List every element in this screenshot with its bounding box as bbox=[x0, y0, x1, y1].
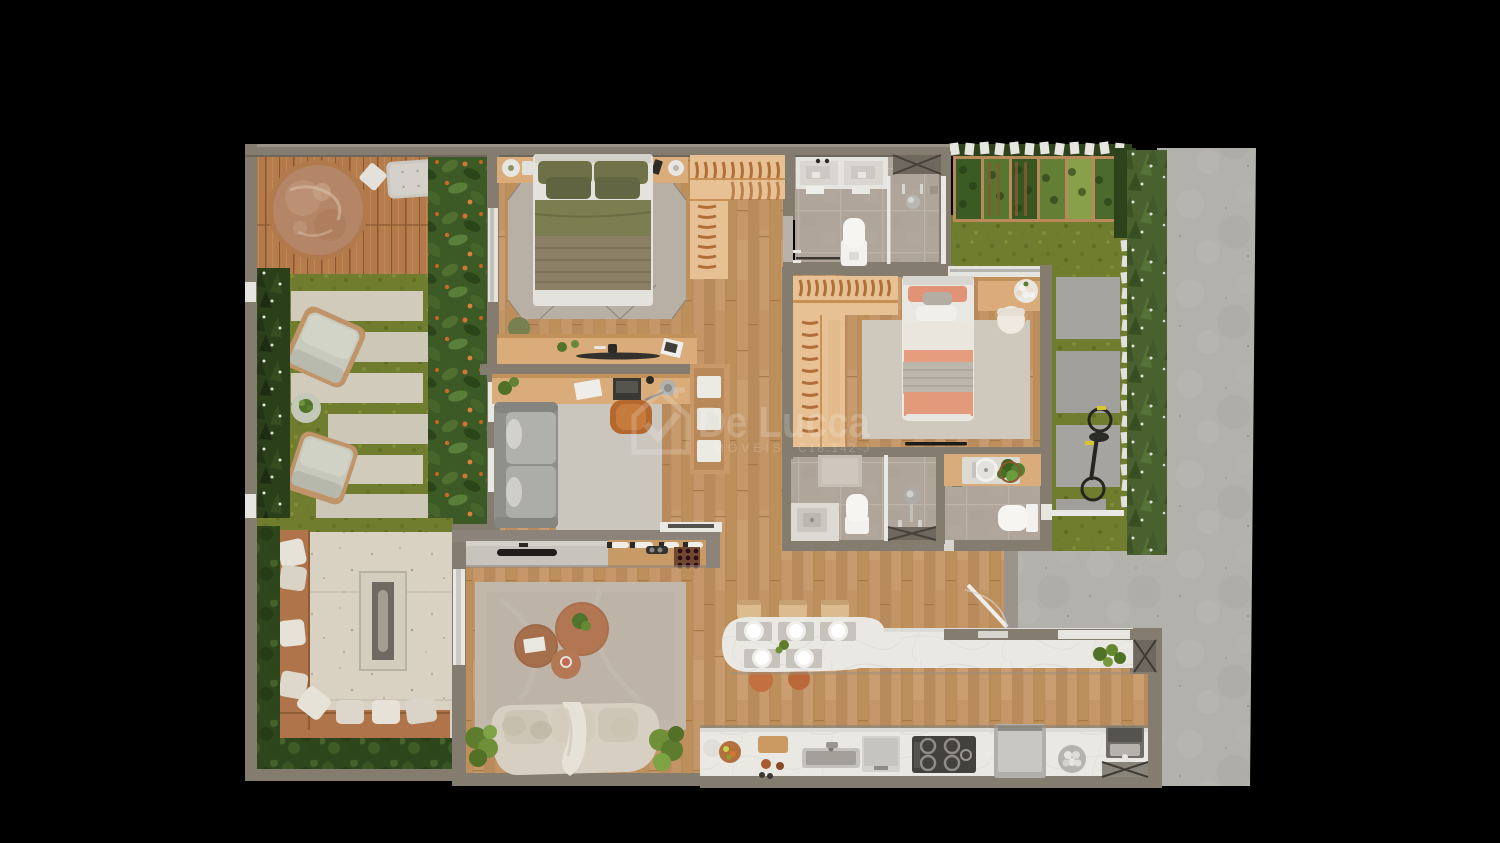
svg-text:C18.142-J: C18.142-J bbox=[798, 441, 871, 455]
svg-text:MÓVEIS: MÓVEIS bbox=[714, 440, 785, 455]
svg-text:De Lucca: De Lucca bbox=[698, 398, 870, 447]
